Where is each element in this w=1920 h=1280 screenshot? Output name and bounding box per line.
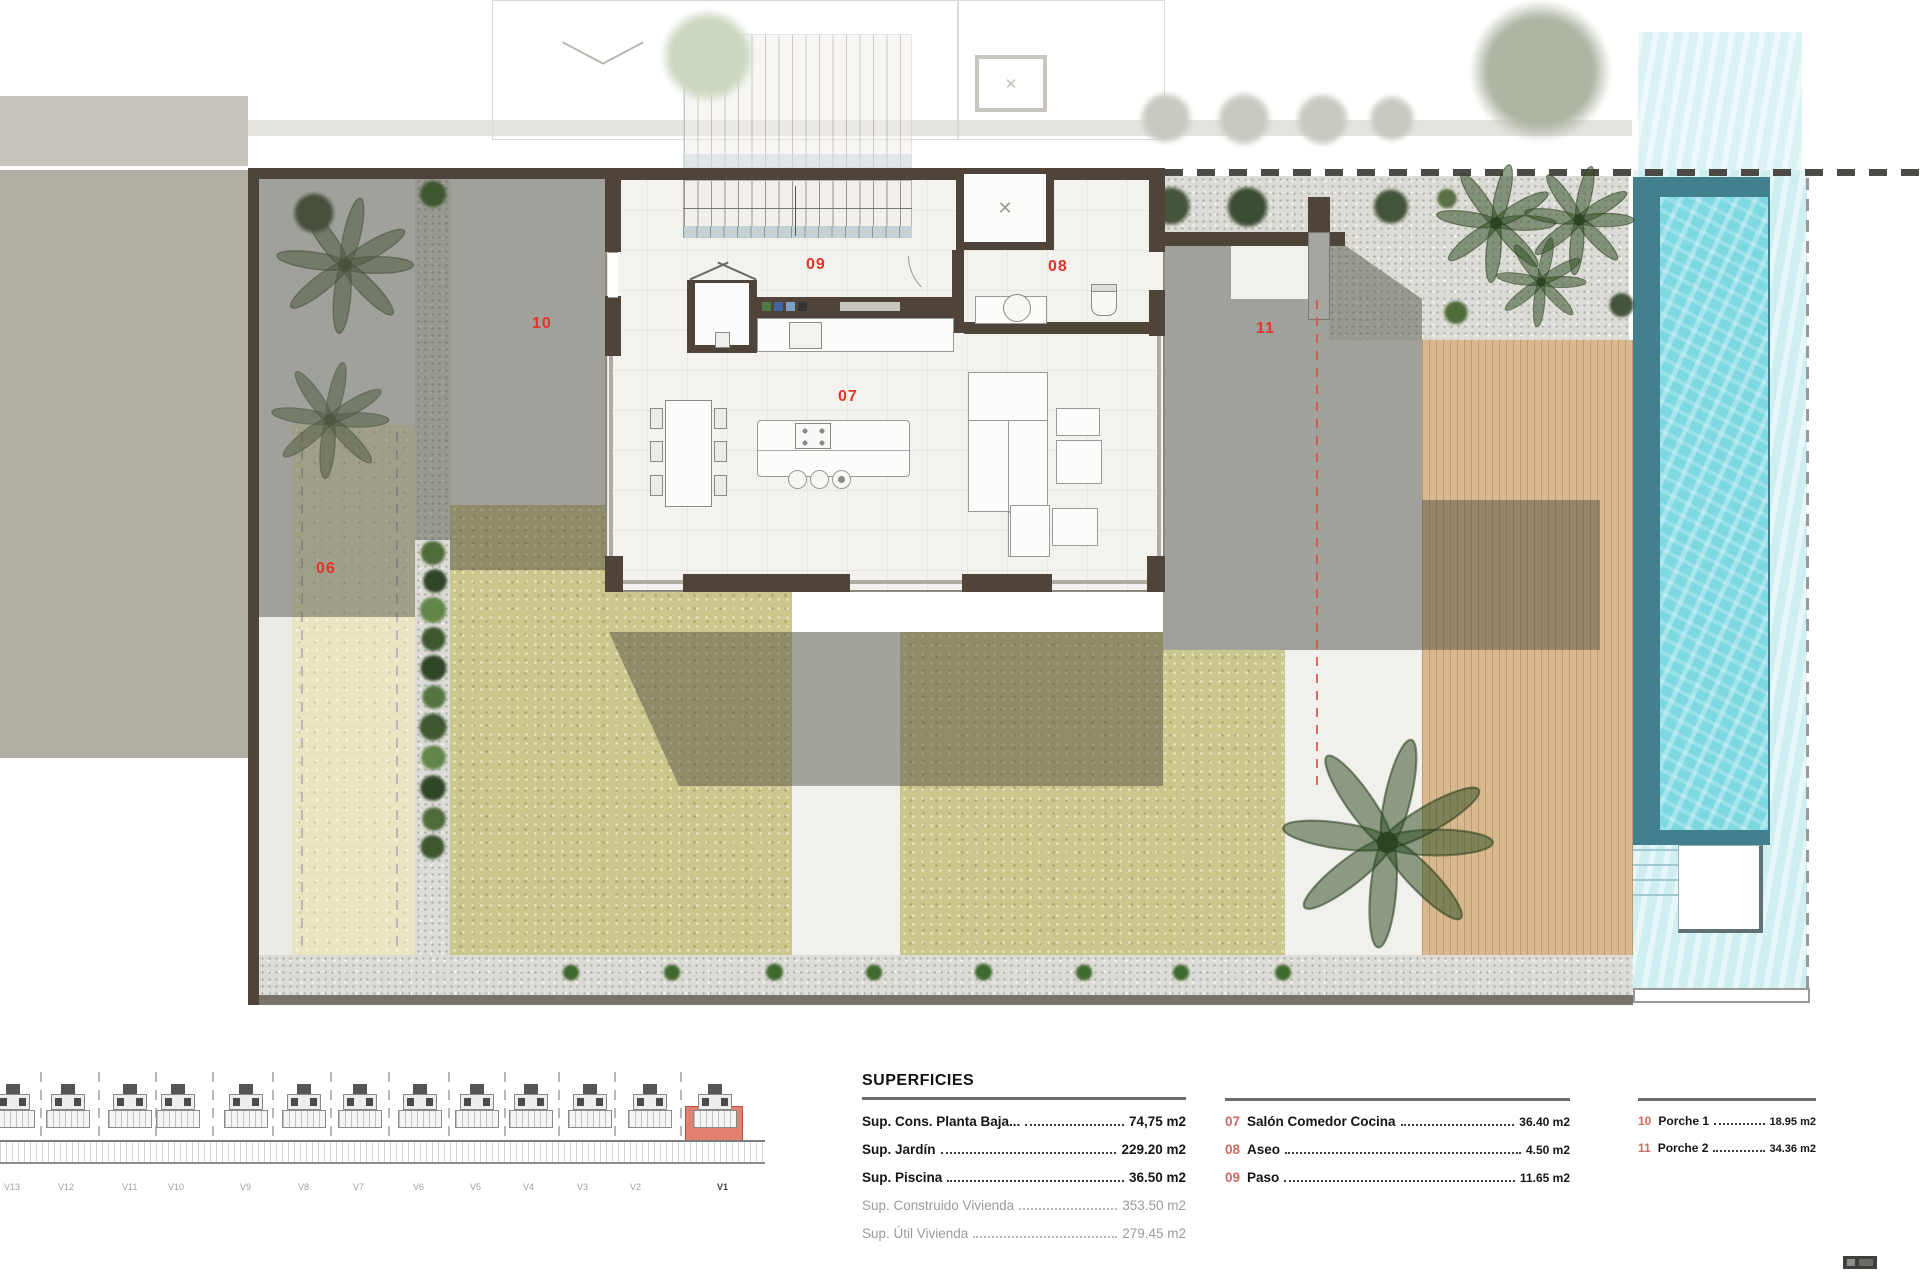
legend-value: 4.50 m2 <box>1526 1143 1570 1157</box>
elevation-unit <box>565 1084 615 1140</box>
elevation-unit <box>221 1084 271 1140</box>
armchair <box>1056 440 1102 484</box>
legend-areas: SUPERFICIES Sup. Cons. Planta Baja... 74… <box>862 1072 1186 1241</box>
legend-value: 74,75 m2 <box>1129 1114 1186 1129</box>
legend-row: 08 Aseo 4.50 m2 <box>1225 1142 1570 1157</box>
legend-value: 279.45 m2 <box>1122 1226 1186 1241</box>
legend-rooms: 07 Salón Comedor Cocina 36.40 m2 08 Aseo… <box>1225 1072 1570 1185</box>
large-palm-tree-icon <box>1280 735 1495 950</box>
unit-label-v7: V7 <box>353 1182 364 1192</box>
tree-icon <box>1139 92 1193 144</box>
grid-line <box>448 1072 450 1142</box>
legend-rule <box>1225 1098 1570 1101</box>
legend-leader <box>1019 1208 1117 1210</box>
glass-wall-south <box>1052 580 1147 584</box>
shrub-icon <box>422 568 448 594</box>
staircase-rail <box>683 208 912 209</box>
boundary-dashed-east <box>1806 178 1809 988</box>
kitchen-counter <box>757 318 954 352</box>
plant-icon <box>663 964 681 981</box>
grid-line <box>40 1072 42 1142</box>
plant-icon <box>765 963 784 981</box>
elevation-unit <box>506 1084 556 1140</box>
unit-label-v3: V3 <box>577 1182 588 1192</box>
shrub-icon <box>418 180 448 208</box>
grid-line <box>330 1072 332 1142</box>
house-wall-east <box>1149 290 1165 336</box>
bush-icon <box>1372 188 1410 225</box>
house-wall-corner-se <box>1147 556 1165 592</box>
legend-leader <box>947 1180 1124 1182</box>
legend-value: 36.40 m2 <box>1519 1115 1570 1129</box>
floor-plan-sheet: ✕ <box>0 0 1920 1280</box>
elevation-unit <box>43 1084 93 1140</box>
legend-leader <box>1714 1123 1764 1125</box>
legend-label: Sup. Cons. Planta Baja... <box>862 1114 1020 1129</box>
legend-room-code: 07 <box>1225 1114 1240 1129</box>
room-label-08: 08 <box>1048 258 1068 276</box>
legend-label: Paso <box>1247 1170 1279 1185</box>
sheet-corner-logo <box>1843 1256 1877 1269</box>
house-wall-north <box>605 168 1165 180</box>
unit-label-v4: V4 <box>523 1182 534 1192</box>
shrub-icon <box>419 774 447 802</box>
legend-value: 229.20 m2 <box>1121 1142 1186 1157</box>
legend-leader <box>973 1236 1117 1238</box>
kitchen-appliance-tile <box>840 302 900 311</box>
legend-value: 11.65 m2 <box>1520 1171 1570 1185</box>
staircase-landing <box>683 226 912 238</box>
house-wall-south <box>683 574 850 592</box>
kitchen-appliance-tile <box>774 302 783 311</box>
glass-wall-south <box>623 580 683 584</box>
legend-porches: 10 Porche 1 18.95 m2 11 Porche 2 34.36 m… <box>1638 1072 1816 1155</box>
legend-row: 07 Salón Comedor Cocina 36.40 m2 <box>1225 1114 1570 1129</box>
window-west <box>608 252 618 298</box>
plant-icon <box>974 963 993 981</box>
tree-icon <box>1216 92 1272 146</box>
pool-upper-faint <box>1638 32 1802 170</box>
legend-row: Sup. Cons. Planta Baja... 74,75 m2 <box>862 1114 1186 1129</box>
legend-row: 09 Paso 11.65 m2 <box>1225 1170 1570 1185</box>
chair-icon <box>650 441 663 462</box>
tree-icon <box>1295 93 1350 146</box>
shower-upper-faint: ✕ <box>975 55 1047 112</box>
legend-rule <box>1638 1098 1816 1101</box>
legend-row: Sup. Jardín 229.20 m2 <box>862 1142 1186 1157</box>
elevation-unit <box>335 1084 385 1140</box>
plant-icon <box>865 964 883 981</box>
elevation-unit <box>279 1084 329 1140</box>
kitchen-appliance-tile <box>786 302 795 311</box>
neighbour-plot <box>0 170 248 758</box>
toilet-tank <box>1091 284 1117 292</box>
elevation-unit <box>625 1084 675 1140</box>
chair-icon <box>714 441 727 462</box>
house-wall-west <box>605 168 621 252</box>
grid-line <box>558 1072 560 1142</box>
legend-label: Sup. Construido Vivienda <box>862 1198 1014 1213</box>
setback-dashed-line <box>1316 300 1318 792</box>
shower-enclosure: ✕ <box>956 168 1054 250</box>
ottoman <box>1052 508 1098 546</box>
tree-icon <box>1368 95 1416 142</box>
shrub-icon <box>421 684 447 710</box>
shrub-icon <box>418 712 448 742</box>
legend-row-muted: Sup. Construido Vivienda 353.50 m2 <box>862 1198 1186 1213</box>
bush-icon <box>1443 300 1469 325</box>
kitchen-appliance-tile <box>798 302 807 311</box>
elevation-unit <box>395 1084 445 1140</box>
legend-value: 353.50 m2 <box>1122 1198 1186 1213</box>
legend-leader <box>1285 1152 1521 1154</box>
elevation-ground-band <box>0 1140 765 1164</box>
legend-label: Porche 1 <box>1658 1114 1709 1128</box>
large-tree-icon <box>1468 0 1613 142</box>
house-wall-east <box>1149 168 1165 252</box>
shrub-icon <box>419 540 447 566</box>
neighbour-plot-upper <box>0 96 248 166</box>
unit-label-v9: V9 <box>240 1182 251 1192</box>
tree-icon <box>660 10 756 102</box>
legend-value: 36.50 m2 <box>1129 1170 1186 1185</box>
room-label-10: 10 <box>532 315 552 333</box>
pergola-shadow-deck <box>1422 500 1600 650</box>
unit-label-v11: V11 <box>122 1182 137 1192</box>
side-table <box>1056 408 1100 436</box>
grid-line <box>388 1072 390 1142</box>
grid-line <box>272 1072 274 1142</box>
legend-leader <box>941 1152 1117 1154</box>
porch-pillar-cap <box>1308 197 1330 232</box>
unit-label-v13: V13 <box>4 1182 20 1192</box>
site-elevation: V13 V12 V11 V10 V9 V8 V7 V6 V5 V4 V3 V2 … <box>0 1070 765 1210</box>
legend-title: SUPERFICIES <box>862 1072 1186 1090</box>
legend-rule <box>862 1097 1186 1100</box>
pool-water <box>1660 197 1768 830</box>
elevation-unit <box>153 1084 203 1140</box>
glass-wall-west <box>609 356 613 556</box>
cooktop <box>795 423 831 449</box>
legend-label: Sup. Jardín <box>862 1142 936 1157</box>
staircase-arrow <box>795 186 796 236</box>
elevation-unit <box>690 1084 740 1140</box>
shrub-icon <box>420 744 447 771</box>
stairs-upper-landing-faint <box>683 154 912 168</box>
grid-line <box>98 1072 100 1142</box>
plant-icon <box>1172 964 1190 981</box>
legend-row: Sup. Piscina 36.50 m2 <box>862 1170 1186 1185</box>
room-label-09: 09 <box>806 256 826 274</box>
shrub-icon <box>419 834 446 860</box>
shrub-icon <box>419 654 448 682</box>
house-wall-west <box>605 296 621 356</box>
porch-pillar <box>1308 232 1330 320</box>
chair-icon <box>650 475 663 496</box>
sofa-seat-line <box>969 420 1047 421</box>
room-label-07: 07 <box>838 388 858 406</box>
boundary-wall-south <box>248 995 1633 1005</box>
legend-label: Sup. Útil Vivienda <box>862 1226 968 1241</box>
house-wall-south <box>962 574 1052 592</box>
legend-label: Porche 2 <box>1658 1141 1709 1155</box>
dining-table <box>665 400 712 507</box>
plant-icon <box>562 964 580 981</box>
kitchen-sink <box>789 322 822 349</box>
legend-label: Sup. Piscina <box>862 1170 942 1185</box>
legend-label: Aseo <box>1247 1142 1280 1157</box>
legend-room-code: 09 <box>1225 1170 1240 1185</box>
glass-wall-east <box>1157 336 1161 556</box>
chair-icon <box>714 408 727 429</box>
legend-leader <box>1025 1124 1124 1126</box>
legend-value: 18.95 m2 <box>1770 1116 1816 1128</box>
house-wall-corner-sw <box>605 556 623 592</box>
legend-row: 11 Porche 2 34.36 m2 <box>1638 1141 1816 1155</box>
chair-icon <box>650 408 663 429</box>
ottoman <box>1010 505 1050 557</box>
kitchen-appliance-tile <box>762 302 771 311</box>
elevation-unit <box>0 1084 38 1140</box>
unit-label-v6: V6 <box>413 1182 424 1192</box>
bush-icon <box>1608 292 1635 318</box>
glass-wall-south <box>850 580 962 584</box>
shrub-icon <box>421 806 447 832</box>
pool-steps <box>1633 849 1678 909</box>
chair-icon <box>714 475 727 496</box>
island-divider-line <box>758 450 909 451</box>
bush-icon <box>1225 186 1270 228</box>
kitchen-island <box>757 420 910 477</box>
palm-tree-icon <box>1495 236 1587 328</box>
shrub-icon <box>418 596 448 624</box>
legend-room-code: 10 <box>1638 1114 1651 1128</box>
legend-leader <box>1713 1150 1764 1152</box>
legend-value: 34.36 m2 <box>1770 1143 1816 1155</box>
room-label-11: 11 <box>1256 320 1275 338</box>
pantry-fixture <box>715 332 730 348</box>
stool-icon <box>810 470 829 489</box>
house-shadow-south <box>609 632 1163 786</box>
pool-coping-south <box>1633 988 1810 1003</box>
gravel-strip-south <box>252 955 1633 995</box>
legend-room-code: 08 <box>1225 1142 1240 1157</box>
legend-leader <box>1401 1124 1515 1126</box>
legend-row-muted: Sup. Útil Vivienda 279.45 m2 <box>862 1226 1186 1241</box>
elevation-unit <box>452 1084 502 1140</box>
stool-icon <box>788 470 807 489</box>
bathroom-sink <box>1003 294 1031 322</box>
grid-line <box>212 1072 214 1142</box>
legend-row: 10 Porche 1 18.95 m2 <box>1638 1114 1816 1128</box>
grid-line <box>680 1072 682 1142</box>
elevation-unit <box>105 1084 155 1140</box>
shrub-icon <box>420 626 447 652</box>
legend-label: Salón Comedor Cocina <box>1247 1114 1396 1129</box>
unit-label-v2: V2 <box>630 1182 641 1192</box>
pool-platform <box>1678 845 1763 933</box>
unit-label-v8: V8 <box>298 1182 309 1192</box>
unit-label-v1: V1 <box>717 1182 728 1192</box>
legend-room-code: 11 <box>1638 1141 1651 1155</box>
unit-label-v10: V10 <box>168 1182 184 1192</box>
unit-label-v5: V5 <box>470 1182 481 1192</box>
unit-label-v12: V12 <box>58 1182 74 1192</box>
room-label-06: 06 <box>316 560 336 578</box>
sofa-seat-line <box>1008 420 1009 512</box>
plant-icon <box>1274 964 1292 981</box>
stool-icon <box>832 470 851 489</box>
plant-icon <box>1075 964 1093 981</box>
legend-leader <box>1284 1180 1515 1182</box>
carport-shadow <box>252 170 605 527</box>
